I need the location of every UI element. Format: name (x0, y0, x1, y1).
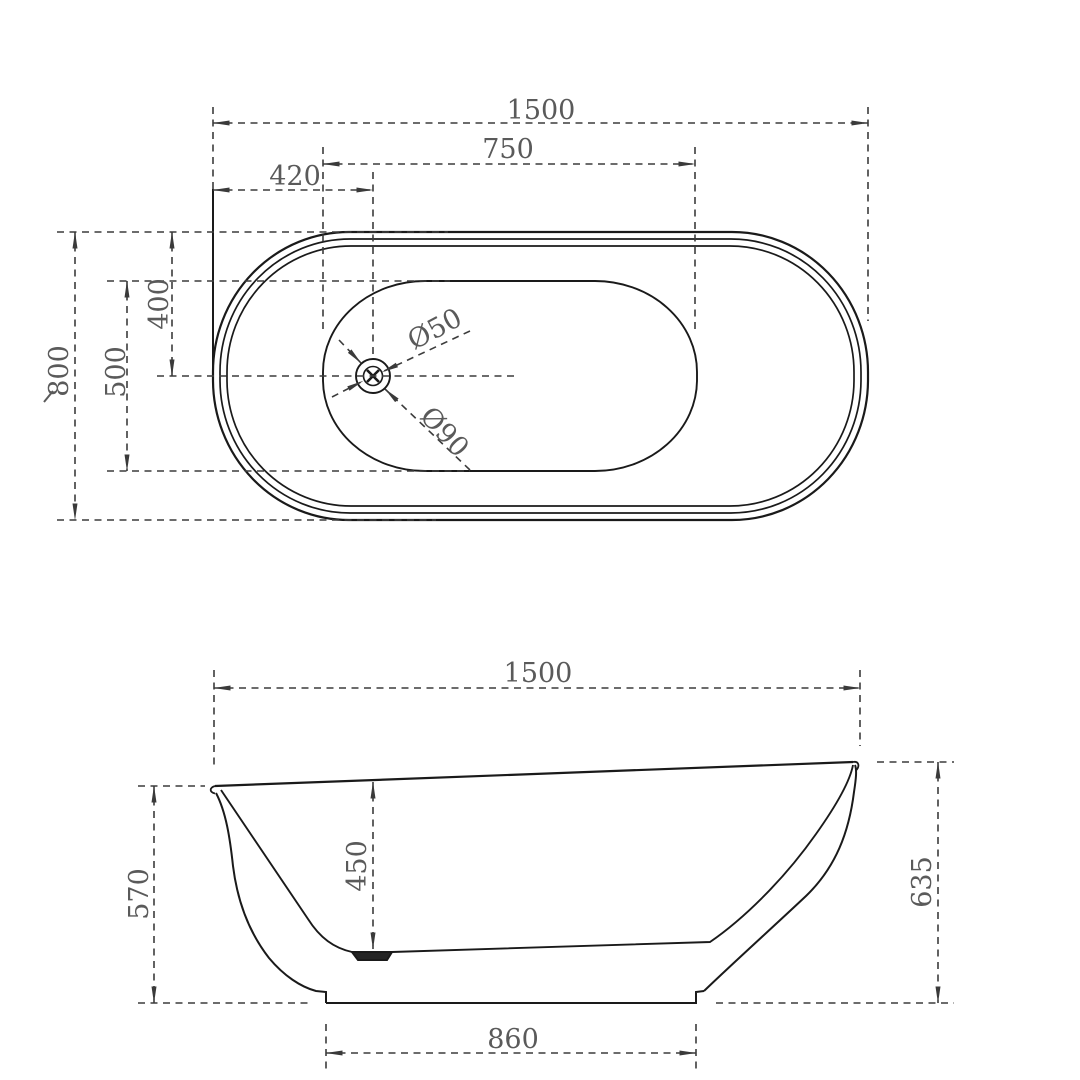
technical-drawing-page: 1500 750 420 800 500 400 Ø50 Ø90 (0, 0, 1080, 1080)
top-view: 1500 750 420 800 500 400 Ø50 Ø90 (44, 95, 868, 520)
label-inner-depth: 450 (342, 840, 373, 892)
rim-line (215, 762, 853, 786)
top-view-dimension-labels: 1500 750 420 800 500 400 Ø50 Ø90 (44, 95, 575, 463)
label-right-rim-height: 635 (907, 856, 938, 908)
side-view: 1500 570 450 635 860 (124, 658, 954, 1070)
side-view-extension-lines (138, 670, 954, 1070)
side-view-dimension-labels: 1500 570 450 635 860 (124, 658, 938, 1055)
outer-wall-left (216, 793, 326, 1003)
label-left-rim-height: 570 (124, 868, 155, 920)
label-top-drain-offset-x: 420 (269, 161, 321, 192)
label-drain-small-diameter: Ø50 (403, 303, 467, 357)
left-rim-lip (211, 786, 215, 794)
label-top-overall-length: 1500 (507, 95, 576, 126)
base-plinth (326, 991, 704, 1003)
leader-drain-small-left (332, 381, 363, 397)
bathtub-dimension-drawing: 1500 750 420 800 500 400 Ø50 Ø90 (0, 0, 1080, 1080)
label-top-inner-width: 500 (101, 346, 132, 398)
label-base-length: 860 (487, 1024, 539, 1055)
label-top-overall-width: 800 (44, 345, 75, 397)
label-top-drain-offset-y: 400 (144, 278, 175, 330)
basin-floor-and-inner-wall-right (392, 765, 853, 952)
top-view-dimension-lines (75, 123, 868, 520)
tub-outline-side-view (211, 762, 859, 1003)
label-side-overall-length: 1500 (504, 658, 573, 689)
inner-wall-left (221, 790, 352, 952)
label-top-inner-length: 750 (482, 134, 534, 165)
label-drain-large-diameter: Ø90 (414, 401, 475, 463)
leader-drain-large-left (339, 340, 361, 363)
drain-side-view (352, 952, 392, 960)
side-view-dimension-lines (154, 688, 938, 1053)
